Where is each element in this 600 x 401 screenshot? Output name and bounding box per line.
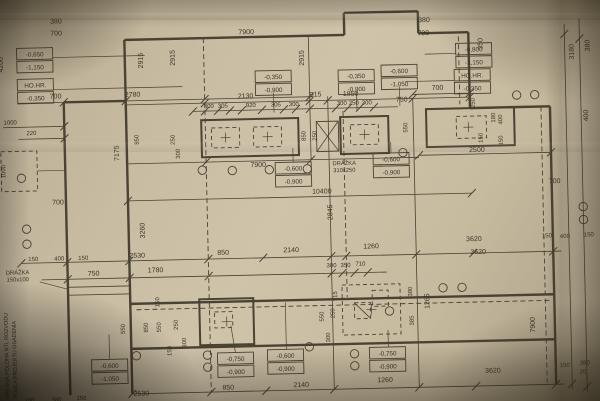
elevation-label: -0,650 bbox=[26, 51, 45, 58]
elevation-label: -0,800 bbox=[465, 46, 484, 53]
leader-line bbox=[405, 80, 454, 81]
foundation-plan-drawing: 3807003807007900291529152915420035031803… bbox=[0, 0, 600, 401]
dimension-label: 550 bbox=[121, 323, 127, 334]
dimension-label: 700 bbox=[50, 30, 62, 37]
dimension-label: 2780 bbox=[125, 92, 141, 99]
dimension-label: 380 bbox=[408, 286, 414, 297]
dimension-label: 2845 bbox=[327, 204, 334, 220]
position-marker-circle bbox=[203, 351, 212, 360]
blueprint-photo: 3807003807007900291529152915420035031803… bbox=[0, 0, 600, 401]
position-marker-circle bbox=[22, 225, 31, 234]
dimension-label: 250 bbox=[330, 308, 336, 319]
dimension-line bbox=[419, 152, 551, 155]
dimension-label: 10400 bbox=[312, 188, 332, 195]
position-marker-circle bbox=[530, 90, 539, 99]
dimension-label: 1000 bbox=[3, 120, 17, 126]
dimension-label: 2530 bbox=[129, 253, 145, 260]
note-label: PRESNÁ POLOHA NTL ROZVODU bbox=[2, 313, 11, 399]
dimension-label: 2915 bbox=[138, 53, 145, 69]
dimension-label: 850 bbox=[217, 250, 229, 257]
dimension-line bbox=[68, 286, 130, 287]
dimension-line bbox=[3, 126, 64, 127]
dimension-label: 2530 bbox=[133, 390, 149, 397]
note-label: DRÁŽKA bbox=[6, 268, 30, 277]
elevation-label: -0,750 bbox=[227, 356, 246, 363]
elevation-label: -0,350 bbox=[464, 85, 483, 92]
dimension-label: 400 bbox=[583, 109, 590, 121]
dimension-label: 400 bbox=[54, 256, 65, 262]
dimension-line bbox=[68, 294, 130, 295]
dimension-label: 7175 bbox=[114, 145, 121, 161]
dimension-label: 3180 bbox=[569, 44, 576, 60]
dimension-line bbox=[19, 138, 65, 139]
dimension-label: 750 bbox=[396, 97, 408, 104]
dimension-label: 380 bbox=[584, 39, 591, 51]
dimension-line bbox=[127, 157, 419, 164]
position-marker-circle bbox=[198, 166, 207, 175]
dimension-label: 2500 bbox=[469, 147, 485, 154]
dimension-label: 700 bbox=[549, 178, 561, 185]
dimension-label: 150 bbox=[560, 363, 571, 369]
dimension-label: 3620 bbox=[470, 249, 486, 256]
dimension-line bbox=[579, 19, 587, 392]
dimension-label: 380 bbox=[50, 18, 62, 25]
elevation-label: HO.HR. bbox=[24, 82, 46, 90]
position-marker-circle bbox=[303, 165, 312, 174]
leader-line bbox=[40, 281, 68, 290]
elevation-label: -0,900 bbox=[227, 369, 246, 376]
dimension-label: 850 bbox=[134, 134, 140, 145]
dimension-label: 150 bbox=[584, 232, 595, 238]
wall-line bbox=[550, 106, 556, 384]
dimension-label: 3260 bbox=[139, 223, 146, 239]
elevation-label: -0,350 bbox=[27, 95, 46, 102]
dimension-label: 750 bbox=[88, 271, 100, 278]
elevation-label: -0,900 bbox=[265, 87, 284, 94]
dimension-label: 400 bbox=[498, 114, 504, 125]
dimension-label: 550 bbox=[157, 321, 163, 332]
dimension-label: 850 bbox=[301, 130, 307, 141]
dimension-label: 715 bbox=[333, 290, 339, 301]
position-marker-circle bbox=[265, 165, 274, 174]
leader-line bbox=[109, 334, 110, 359]
position-marker-circle bbox=[512, 91, 521, 100]
note-label: PODĽA PROJEKTU OSADENIA bbox=[12, 320, 20, 398]
position-marker-circle bbox=[350, 350, 359, 359]
dimension-label: 2140 bbox=[283, 247, 299, 254]
dimension-label: 300 bbox=[326, 332, 332, 343]
footing-pad bbox=[201, 118, 299, 157]
note-label: 310x250 bbox=[333, 168, 355, 175]
dimension-label: 250 bbox=[471, 97, 477, 108]
dimension-label: 915 bbox=[310, 91, 322, 98]
leader-line bbox=[285, 302, 286, 349]
leader-line bbox=[231, 326, 236, 353]
elevation-label: -0,600 bbox=[284, 165, 303, 172]
dimension-label: 850 bbox=[144, 322, 150, 333]
dimension-label: 305 bbox=[271, 102, 282, 108]
elevation-label: -0,750 bbox=[379, 350, 398, 357]
dimension-label: 150 bbox=[28, 257, 39, 263]
elevation-label: -0,350 bbox=[264, 74, 283, 81]
dimension-label: 550 bbox=[403, 122, 409, 133]
elevation-label: -1,150 bbox=[465, 59, 484, 66]
dimension-label: 700 bbox=[52, 199, 64, 206]
position-marker-circle bbox=[458, 283, 467, 292]
dimension-line bbox=[132, 384, 564, 394]
elevation-label: -0,600 bbox=[277, 353, 296, 360]
leader-line bbox=[37, 170, 65, 171]
elevation-label: -0,900 bbox=[285, 178, 304, 185]
dimension-label: 180 bbox=[491, 112, 497, 123]
dimension-label: 250 bbox=[312, 130, 318, 141]
leader-line bbox=[53, 87, 182, 90]
dimension-label: 2130 bbox=[238, 93, 254, 100]
elevation-label: -0,900 bbox=[379, 363, 398, 370]
position-marker-circle bbox=[350, 362, 359, 371]
hidden-edge-line bbox=[203, 38, 211, 392]
dimension-label: 300 bbox=[176, 148, 182, 159]
dimension-label: 700 bbox=[417, 30, 429, 37]
wall-line bbox=[344, 11, 418, 13]
dimension-label: 700 bbox=[432, 85, 444, 92]
dimension-label: 300 bbox=[326, 263, 337, 269]
leader-line bbox=[53, 55, 145, 57]
dimension-label: 850 bbox=[222, 385, 234, 392]
dimension-label: 250 bbox=[349, 101, 360, 107]
dimension-label: 1260 bbox=[377, 377, 393, 384]
dimension-label: 550 bbox=[320, 311, 326, 322]
note-label: 150x100 bbox=[7, 277, 29, 284]
dimension-label: 7900 bbox=[250, 162, 266, 169]
position-marker-circle bbox=[385, 307, 394, 316]
dimension-label: 150 bbox=[479, 132, 485, 143]
dimension-label: 300 bbox=[182, 337, 188, 348]
dimension-label: 385 bbox=[410, 315, 416, 326]
dimension-label: 380 bbox=[418, 17, 430, 24]
elevation-label: -0,900 bbox=[348, 86, 367, 93]
dimension-label: 1000 bbox=[1, 164, 7, 178]
wall-line bbox=[124, 35, 344, 40]
plan-rotated-group: 3807003807007900291529152915420035031803… bbox=[0, 6, 599, 401]
wall-line bbox=[64, 102, 71, 395]
elevation-label: -1,050 bbox=[390, 81, 409, 88]
dimension-label: 7900 bbox=[530, 317, 537, 333]
dimension-label: 3620 bbox=[485, 367, 501, 374]
dimension-label: 1265 bbox=[424, 293, 431, 309]
elevation-label: -0,600 bbox=[390, 68, 409, 75]
dimension-label: 150 bbox=[499, 135, 505, 146]
elevation-label: -1,050 bbox=[101, 376, 120, 383]
dimension-label: 305 bbox=[218, 104, 229, 110]
dimension-label: 380 bbox=[51, 397, 62, 401]
dimension-label: 380 bbox=[580, 360, 591, 366]
dimension-line bbox=[128, 193, 472, 201]
dimension-label: 920 bbox=[246, 103, 257, 109]
dimension-label: 300 bbox=[337, 101, 348, 107]
dimension-label: 300 bbox=[204, 104, 215, 110]
dimension-label: 150 bbox=[167, 345, 173, 356]
dimension-label: 150 bbox=[155, 297, 161, 308]
dimension-label: 710 bbox=[355, 262, 366, 268]
dimension-label: 7900 bbox=[238, 29, 254, 36]
position-marker-circle bbox=[17, 174, 26, 183]
footing-pad-dashed bbox=[215, 312, 233, 328]
dimension-line bbox=[564, 24, 572, 389]
leader-line bbox=[425, 53, 456, 54]
dimension-label: 3620 bbox=[466, 236, 482, 243]
hidden-edge-line bbox=[541, 107, 547, 383]
dimension-label: 150 bbox=[542, 233, 553, 239]
position-marker-circle bbox=[132, 351, 141, 360]
elevation-label: HO.HR. bbox=[461, 72, 483, 80]
dimension-label: 250 bbox=[174, 319, 180, 330]
dimension-label: 700 bbox=[50, 93, 62, 100]
dimension-label: 1780 bbox=[148, 267, 164, 274]
dimension-label: 300 bbox=[289, 102, 300, 108]
position-marker-circle bbox=[23, 240, 32, 249]
position-marker-circle bbox=[228, 166, 237, 175]
elevation-label: -0,350 bbox=[347, 73, 366, 80]
dimension-label: 350 bbox=[340, 263, 351, 269]
elevation-label: -0,900 bbox=[277, 366, 296, 373]
dimension-label: 300 bbox=[362, 100, 373, 106]
dimension-label: 20 bbox=[580, 370, 587, 376]
dimension-label: 2915 bbox=[299, 50, 306, 66]
elevation-label: -0,600 bbox=[382, 156, 401, 163]
position-marker-circle bbox=[439, 283, 448, 292]
dimension-label: 150 bbox=[78, 256, 89, 262]
dimension-line bbox=[413, 98, 420, 387]
dimension-label: 150 bbox=[76, 396, 87, 401]
dimension-label: 220 bbox=[26, 131, 37, 137]
wall-line bbox=[131, 339, 555, 349]
dimension-line bbox=[18, 97, 313, 104]
dimension-label: 400 bbox=[560, 234, 571, 240]
dimension-label: 1260 bbox=[363, 243, 379, 250]
dimension-label: 250 bbox=[170, 134, 176, 145]
elevation-label: -0,900 bbox=[382, 169, 401, 176]
dimension-label: 2915 bbox=[170, 50, 177, 66]
dimension-label: 2140 bbox=[293, 382, 309, 389]
elevation-label: -0,600 bbox=[101, 363, 120, 370]
elevation-label: -1,150 bbox=[26, 64, 45, 71]
dimension-label: 4200 bbox=[0, 57, 5, 73]
